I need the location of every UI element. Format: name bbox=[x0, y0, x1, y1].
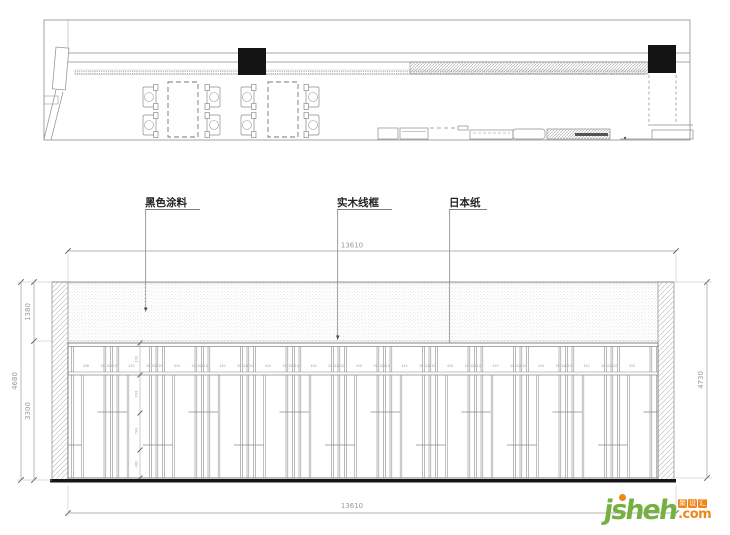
dim-left-total: 4680 bbox=[11, 372, 19, 390]
plan-table bbox=[268, 82, 298, 137]
dim-right-total: 4730 bbox=[697, 371, 705, 389]
callout-japanese-paper: 日本纸 bbox=[449, 196, 481, 209]
elevation-painted-band bbox=[68, 283, 658, 341]
dim-left-lower: 3300 bbox=[24, 402, 32, 420]
small-dim-label: 410 bbox=[265, 364, 271, 368]
drawing-canvas: 黑色涂料 实木线框 日本纸 43620102010410201020104102… bbox=[0, 0, 730, 535]
cad-sheet: 黑色涂料 实木线框 日本纸 43620102010410201020104102… bbox=[0, 0, 730, 535]
small-dim-label: 20102010 bbox=[374, 364, 390, 368]
logo-tld-text: .com bbox=[678, 508, 711, 521]
small-dim-label: 410 bbox=[356, 364, 362, 368]
small-dim-label: 20102010 bbox=[328, 364, 344, 368]
plan-entry-door bbox=[44, 47, 69, 140]
small-dim-label: 20102010 bbox=[192, 364, 208, 368]
logo-brand-text: jsheh bbox=[602, 496, 678, 526]
plan-chair bbox=[241, 113, 256, 138]
elevation-pier-left bbox=[52, 282, 68, 481]
small-dim-label: 20102010 bbox=[465, 364, 481, 368]
small-dim-label: 20102010 bbox=[237, 364, 253, 368]
plan-right-partition bbox=[620, 75, 693, 139]
small-dim-label: 20102010 bbox=[601, 364, 617, 368]
plan-chair bbox=[143, 85, 158, 110]
small-dim-label: 410 bbox=[128, 364, 134, 368]
dim-bottom-width: 13610 bbox=[341, 502, 363, 510]
plan-chair bbox=[205, 85, 220, 110]
chain-dim-label: 400 bbox=[135, 461, 139, 468]
small-dim-label: 410 bbox=[401, 364, 407, 368]
small-dim-label: 20102010 bbox=[419, 364, 435, 368]
small-dim-label: 436 bbox=[83, 364, 89, 368]
plan-wall-hatch-band bbox=[410, 62, 648, 74]
plan-chair bbox=[241, 85, 256, 110]
small-dim-label: 20102010 bbox=[146, 364, 162, 368]
small-dim-label: 410 bbox=[492, 364, 498, 368]
small-dim-label: 410 bbox=[447, 364, 453, 368]
small-dim-label: 410 bbox=[538, 364, 544, 368]
elevation-pier-right bbox=[658, 282, 674, 481]
plan-boundary bbox=[44, 20, 690, 140]
callout-black-paint: 黑色涂料 bbox=[145, 196, 187, 209]
chain-dim-label: 110 bbox=[135, 356, 139, 363]
elevation-base-line bbox=[50, 479, 676, 483]
small-dim-label: 410 bbox=[310, 364, 316, 368]
small-dim-label: 410 bbox=[219, 364, 225, 368]
chain-dim-label: 743 bbox=[135, 391, 139, 398]
small-dim-label: 410 bbox=[629, 364, 635, 368]
small-dim-label: 20102010 bbox=[283, 364, 299, 368]
small-dim-label: 20102010 bbox=[510, 364, 526, 368]
callout-wood-frame: 实木线框 bbox=[337, 196, 379, 209]
plan-column-left bbox=[238, 48, 266, 75]
dim-left-upper: 1380 bbox=[24, 303, 32, 321]
small-dim-label: 20102010 bbox=[556, 364, 572, 368]
plan-column-right bbox=[648, 45, 676, 73]
floor-plan bbox=[44, 20, 693, 140]
plan-chair bbox=[205, 113, 220, 138]
logo-dot-icon bbox=[619, 494, 626, 501]
plan-chair bbox=[304, 85, 319, 110]
plan-chair bbox=[304, 113, 319, 138]
small-dim-label: 410 bbox=[583, 364, 589, 368]
elevation-view: 4362010201041020102010410201020104102010… bbox=[50, 282, 676, 483]
plan-counter bbox=[378, 126, 626, 139]
small-dim-label: 20102010 bbox=[101, 364, 117, 368]
jsheh-watermark-logo[interactable]: jsheh 聚 设 汇 .com bbox=[604, 496, 711, 526]
plan-table bbox=[168, 82, 198, 137]
dim-top-width: 13610 bbox=[341, 242, 363, 250]
plan-chair bbox=[143, 113, 158, 138]
small-dim-label: 410 bbox=[174, 364, 180, 368]
chain-dim-label: 743 bbox=[135, 428, 139, 435]
